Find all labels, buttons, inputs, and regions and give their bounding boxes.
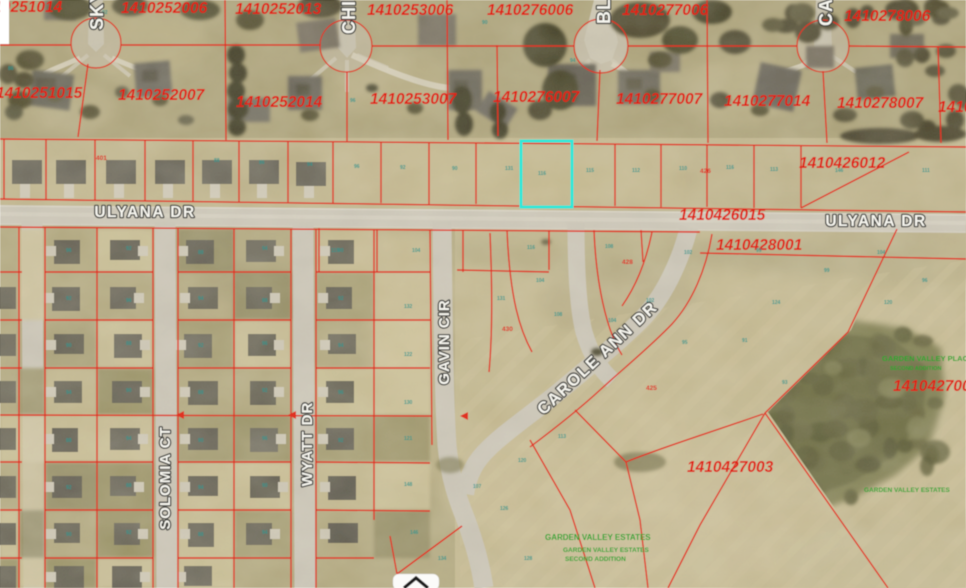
svg-text:CHI: CHI (339, 0, 359, 34)
svg-text:SECOND ADDITION: SECOND ADDITION (565, 556, 626, 563)
svg-text:ULYANA DR: ULYANA DR (94, 204, 195, 221)
svg-text:124: 124 (772, 300, 781, 306)
svg-text:90: 90 (66, 343, 72, 349)
svg-text:92: 92 (66, 485, 72, 491)
svg-text:88: 88 (126, 341, 132, 347)
svg-text:96: 96 (66, 248, 72, 254)
svg-text:88: 88 (214, 158, 220, 164)
svg-text:90: 90 (338, 248, 344, 254)
svg-text:1410: 1410 (938, 99, 966, 116)
svg-text:92: 92 (198, 343, 204, 349)
svg-text:1410278006: 1410278006 (844, 8, 931, 25)
svg-text:116: 116 (527, 245, 535, 251)
svg-text:108: 108 (605, 244, 614, 250)
svg-text:92: 92 (338, 438, 344, 444)
svg-text:WYATT DR: WYATT DR (299, 402, 316, 487)
svg-text:94: 94 (307, 162, 313, 168)
svg-text:90: 90 (452, 166, 458, 172)
svg-text:88: 88 (66, 438, 72, 444)
svg-text:94: 94 (338, 343, 344, 349)
svg-text:108: 108 (554, 312, 563, 318)
svg-text:90: 90 (262, 483, 268, 489)
svg-text:99: 99 (824, 268, 830, 274)
svg-text:99: 99 (756, 248, 762, 254)
svg-text:1410276006: 1410276006 (487, 2, 574, 19)
svg-text:86: 86 (8, 66, 14, 72)
svg-text:96: 96 (338, 390, 344, 396)
svg-text:115: 115 (586, 168, 594, 174)
svg-text:SKY: SKY (87, 0, 107, 30)
svg-text:132: 132 (404, 304, 413, 310)
svg-text:131: 131 (497, 296, 506, 302)
svg-text:92: 92 (338, 296, 344, 302)
svg-text:92: 92 (66, 296, 72, 302)
svg-text:1410277006: 1410277006 (622, 2, 709, 19)
svg-text:95: 95 (682, 340, 688, 346)
svg-text:146: 146 (835, 168, 844, 174)
svg-text:1410277014: 1410277014 (724, 93, 811, 110)
svg-text:1410278007: 1410278007 (837, 95, 925, 112)
svg-text:88: 88 (198, 532, 204, 538)
svg-text:401: 401 (96, 155, 107, 162)
svg-text:1410277007: 1410277007 (616, 91, 704, 108)
svg-text:1410252014: 1410252014 (236, 94, 323, 111)
svg-text:88: 88 (126, 483, 132, 489)
svg-text:1410252013: 1410252013 (235, 1, 322, 18)
svg-text:CA: CA (816, 0, 836, 26)
svg-text:430: 430 (502, 326, 513, 333)
svg-text:GARDEN VALLEY ESTATES: GARDEN VALLEY ESTATES (545, 533, 651, 542)
svg-text:92: 92 (126, 246, 132, 252)
svg-text:GAVIN CIR: GAVIN CIR (436, 299, 453, 384)
svg-text:86: 86 (259, 160, 265, 166)
svg-text:1410252006: 1410252006 (121, 0, 208, 17)
svg-text:92: 92 (126, 530, 132, 536)
svg-text:121: 121 (404, 436, 413, 442)
svg-text:425: 425 (646, 385, 657, 392)
svg-text:104: 104 (412, 248, 421, 254)
svg-text:92: 92 (400, 165, 406, 171)
svg-text:94: 94 (66, 390, 72, 396)
svg-text:GARDEN VALLEY PLACE: GARDEN VALLEY PLACE (882, 354, 966, 363)
svg-text:134: 134 (438, 556, 447, 562)
svg-text:104: 104 (608, 318, 617, 324)
svg-text:94: 94 (570, 58, 576, 64)
svg-text:92: 92 (262, 388, 268, 394)
svg-text:1410252007: 1410252007 (118, 87, 206, 104)
svg-text:1410251015: 1410251015 (0, 85, 83, 102)
svg-text:426: 426 (700, 168, 711, 175)
svg-text:130: 130 (404, 400, 413, 406)
svg-text:111: 111 (922, 168, 930, 174)
svg-text:126: 126 (500, 506, 509, 512)
svg-text:90: 90 (198, 438, 204, 444)
svg-text:96: 96 (350, 98, 356, 104)
svg-text:96: 96 (922, 278, 928, 284)
svg-text:94: 94 (198, 485, 204, 491)
svg-text:1410427001: 1410427001 (893, 378, 966, 395)
svg-text:90: 90 (482, 20, 488, 26)
svg-text:96: 96 (262, 341, 268, 347)
svg-text:88: 88 (262, 298, 268, 304)
svg-text:94: 94 (126, 436, 132, 442)
svg-text:107: 107 (473, 484, 482, 490)
svg-text:BLU: BLU (594, 0, 614, 24)
svg-text:1410427003: 1410427003 (687, 459, 774, 476)
svg-text:113: 113 (770, 167, 778, 173)
svg-text:SECOND ADDITION: SECOND ADDITION (890, 366, 941, 372)
svg-text:88: 88 (198, 390, 204, 396)
svg-text:96: 96 (262, 436, 268, 442)
svg-text:146: 146 (410, 530, 419, 536)
svg-text:94: 94 (198, 296, 204, 302)
svg-text:94: 94 (262, 530, 268, 536)
svg-text:116: 116 (538, 171, 546, 177)
svg-text:1410251014: 1410251014 (0, 0, 63, 16)
svg-text:90: 90 (66, 532, 72, 538)
svg-text:428: 428 (622, 259, 633, 266)
svg-text:116: 116 (726, 165, 734, 171)
svg-text:102: 102 (684, 250, 693, 256)
svg-text:93: 93 (782, 380, 788, 386)
svg-text:91: 91 (742, 338, 748, 344)
svg-text:96: 96 (126, 298, 132, 304)
svg-text:110: 110 (679, 166, 687, 172)
svg-text:90: 90 (126, 388, 132, 394)
svg-text:112: 112 (632, 168, 640, 174)
svg-text:1410426015: 1410426015 (679, 207, 766, 224)
svg-text:120: 120 (884, 300, 893, 306)
svg-text:128: 128 (524, 556, 533, 562)
svg-text:148: 148 (404, 482, 413, 488)
svg-text:88: 88 (198, 250, 204, 256)
svg-text:113: 113 (558, 434, 566, 440)
svg-text:ULYANA DR: ULYANA DR (825, 213, 926, 230)
svg-text:GARDEN VALLEY ESTATES: GARDEN VALLEY ESTATES (563, 547, 649, 554)
svg-text:1410276007: 1410276007 (493, 89, 581, 106)
svg-text:131: 131 (505, 166, 514, 172)
svg-text:GARDEN VALLEY ESTATES: GARDEN VALLEY ESTATES (864, 487, 950, 494)
svg-text:96: 96 (354, 164, 360, 170)
svg-text:122: 122 (404, 352, 413, 358)
svg-text:1410253007: 1410253007 (370, 91, 458, 108)
svg-text:SOLOMIA CT: SOLOMIA CT (157, 426, 174, 530)
svg-text:94: 94 (262, 246, 268, 252)
svg-text:120: 120 (518, 458, 527, 464)
svg-text:104: 104 (877, 250, 886, 256)
svg-text:104: 104 (536, 278, 545, 284)
svg-text:1410253006: 1410253006 (367, 2, 454, 19)
